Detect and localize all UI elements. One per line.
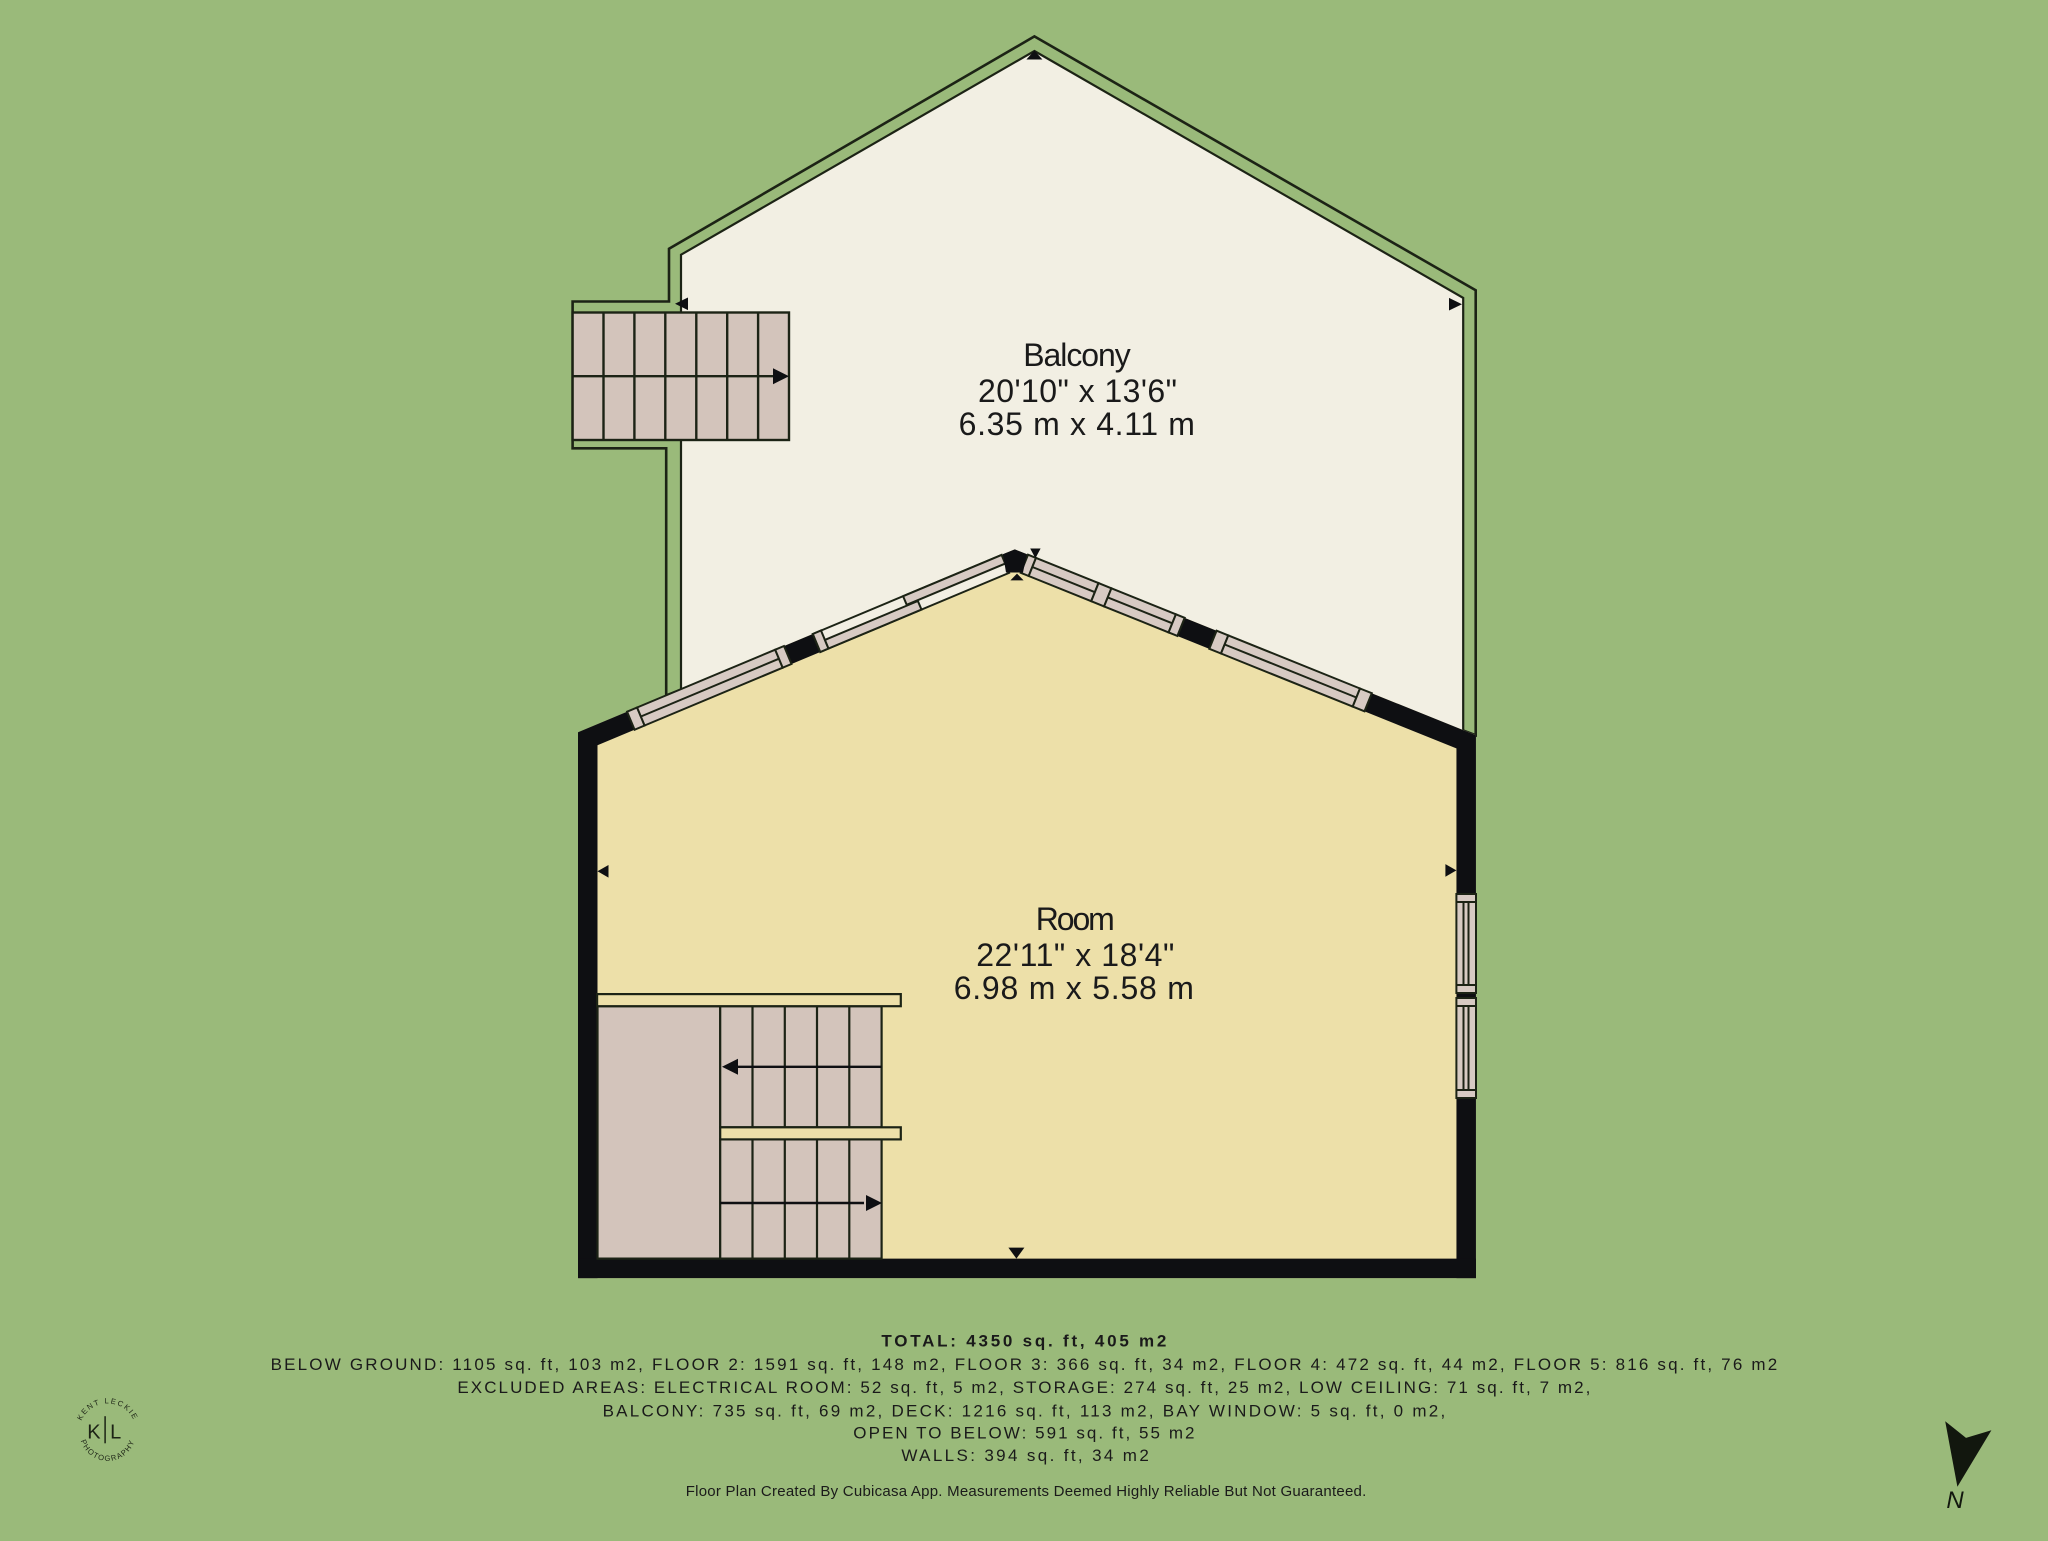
svg-text:TOTAL: 4350 sq. ft, 405 m2: TOTAL: 4350 sq. ft, 405 m2 xyxy=(881,1332,1166,1351)
svg-text:K: K xyxy=(87,1422,101,1444)
svg-text:EXCLUDED AREAS: ELECTRICAL ROO: EXCLUDED AREAS: ELECTRICAL ROOM: 52 sq. … xyxy=(457,1378,1590,1397)
svg-text:22'11" x 18'4": 22'11" x 18'4" xyxy=(976,937,1174,973)
svg-text:Room: Room xyxy=(1036,901,1115,937)
svg-text:Balcony: Balcony xyxy=(1023,337,1131,373)
svg-text:OPEN TO BELOW: 591 sq. ft, 55: OPEN TO BELOW: 591 sq. ft, 55 m2 xyxy=(853,1424,1194,1443)
svg-text:20'10" x 13'6": 20'10" x 13'6" xyxy=(978,373,1177,409)
svg-text:L: L xyxy=(110,1422,121,1444)
svg-text:BALCONY: 735 sq. ft, 69 m2, DE: BALCONY: 735 sq. ft, 69 m2, DECK: 1216 s… xyxy=(603,1401,1446,1420)
svg-text:6.98 m x 5.58 m: 6.98 m x 5.58 m xyxy=(954,970,1194,1006)
svg-text:Floor Plan Created By Cubicasa: Floor Plan Created By Cubicasa App. Meas… xyxy=(686,1483,1367,1500)
svg-text:N: N xyxy=(1946,1487,1964,1514)
svg-text:6.35 m x 4.11 m: 6.35 m x 4.11 m xyxy=(959,406,1195,442)
